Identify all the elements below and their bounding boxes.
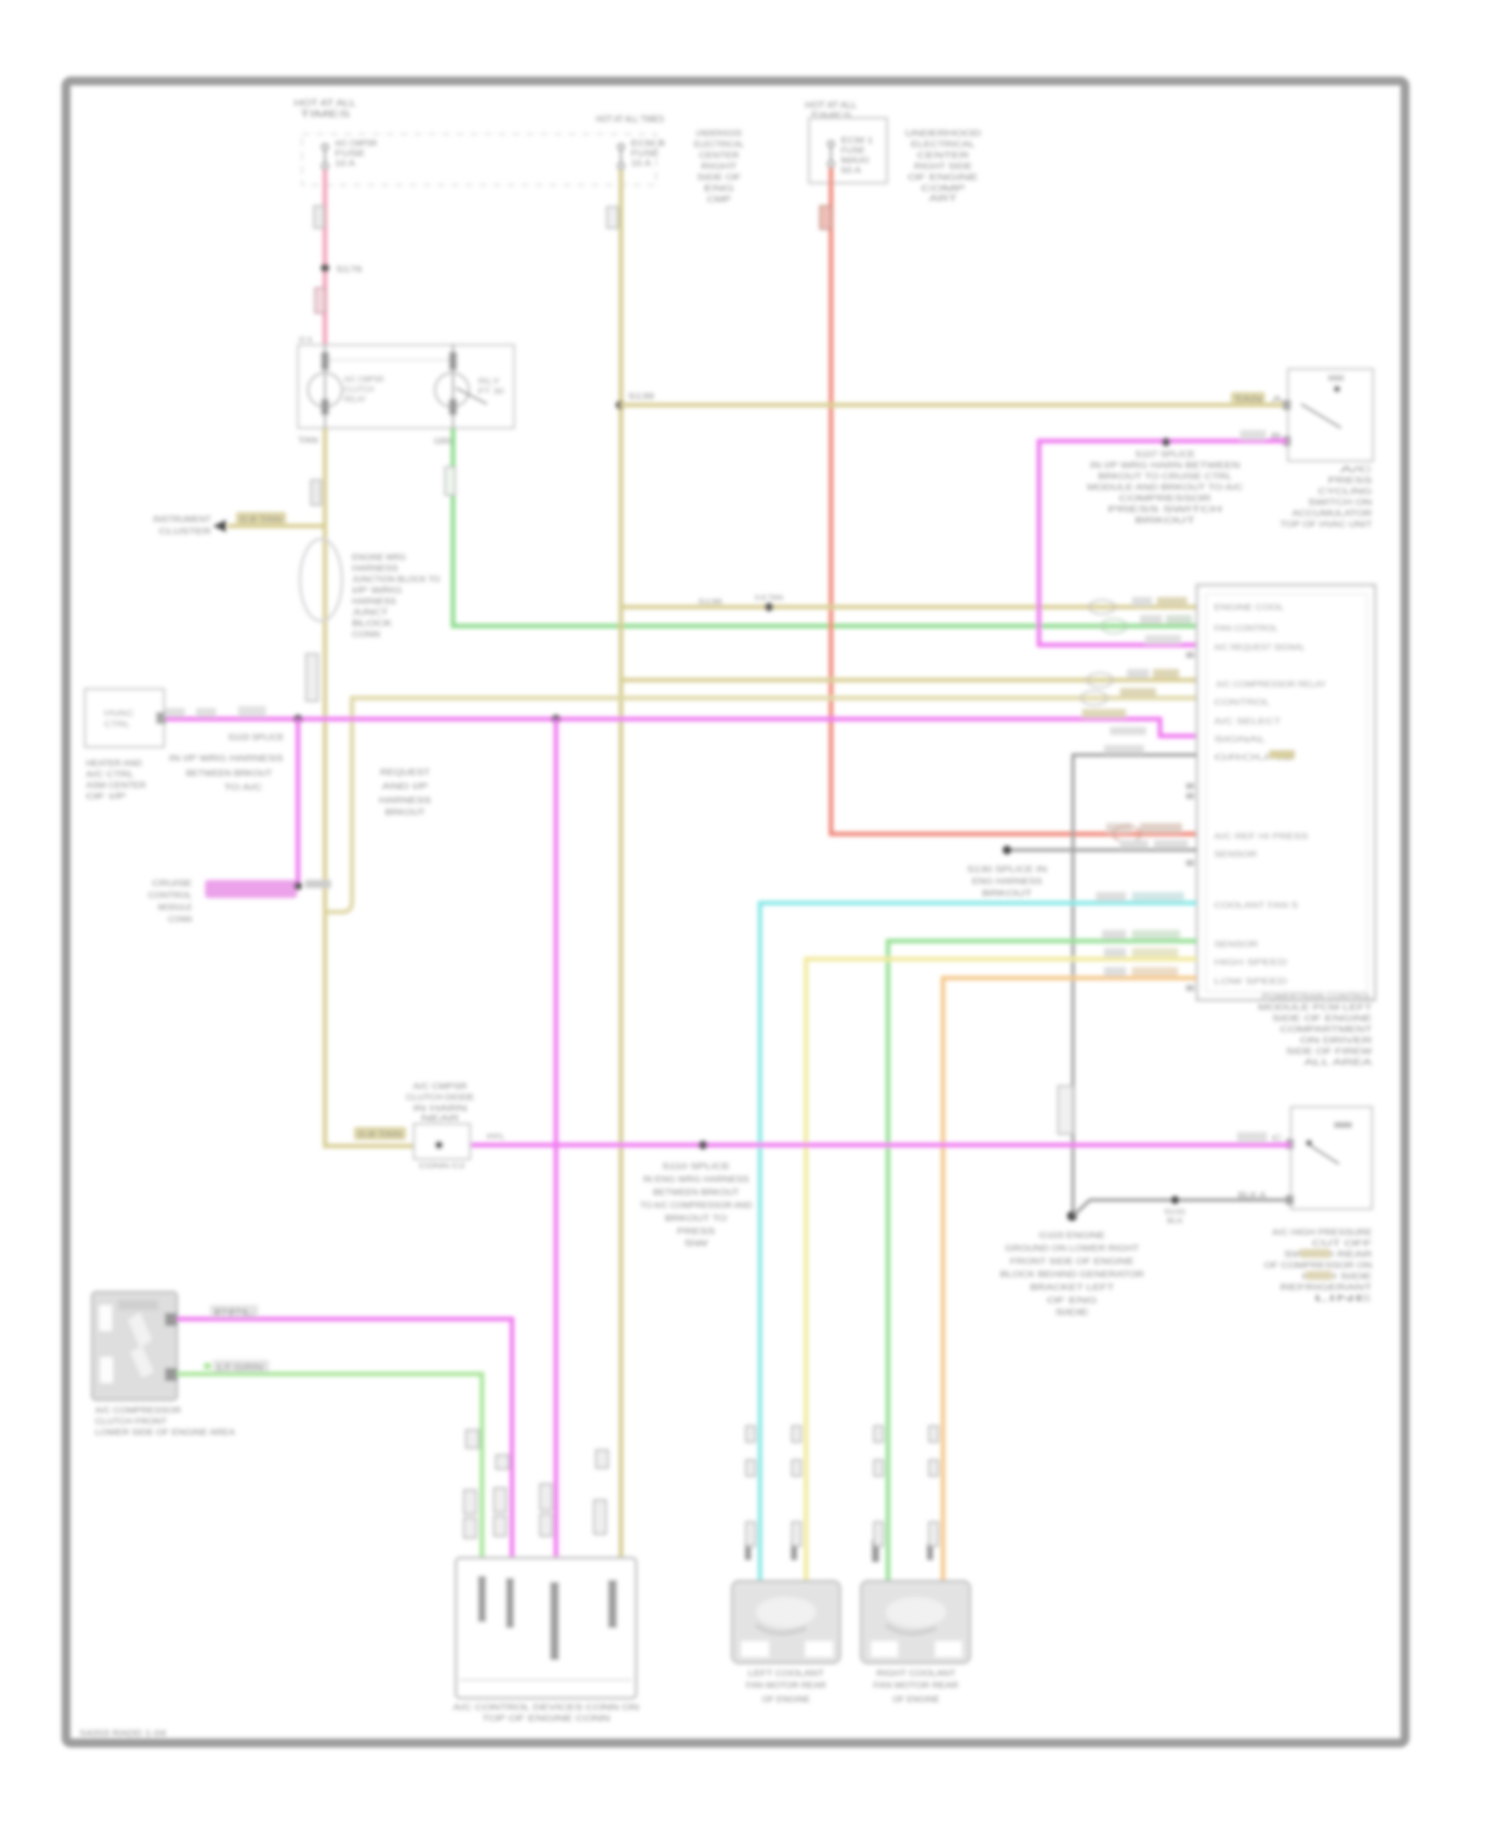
svg-text:TOP OF HVAC UNIT: TOP OF HVAC UNIT [1280,520,1372,529]
svg-text:JUNCTION BLOCK TO: JUNCTION BLOCK TO [352,575,440,584]
svg-text:SW: SW [684,1239,709,1248]
svg-text:CONN: CONN [168,915,192,924]
svg-text:TO A/C: TO A/C [224,783,262,792]
svg-text:POWERTRAIN CONTROL: POWERTRAIN CONTROL [1262,992,1373,1001]
svg-text:A/C COMPRESSOR: A/C COMPRESSOR [95,1406,181,1415]
svg-text:TAN: TAN [1234,395,1262,404]
svg-text:G103 ENGINE: G103 ENGINE [1039,1231,1105,1240]
svg-text:IN I/P WRG HARNESS: IN I/P WRG HARNESS [169,754,283,763]
svg-text:HOT AT ALL: HOT AT ALL [294,98,356,108]
svg-text:SIDE OF: SIDE OF [697,173,741,182]
svg-text:RIGHT COOLANT: RIGHT COOLANT [877,1669,956,1678]
svg-text:S107 SPLICE: S107 SPLICE [1135,450,1195,459]
svg-text:OF ENGINE: OF ENGINE [908,173,978,182]
svg-text:INSTRUMENT: INSTRUMENT [153,515,211,524]
svg-text:FRONT SIDE OF ENGINE: FRONT SIDE OF ENGINE [1010,1257,1134,1266]
svg-text:BLK A: BLK A [1238,1191,1267,1200]
svg-text:SIDE OF ENGINE: SIDE OF ENGINE [1272,1014,1372,1023]
svg-text:A/C COMPRESSOR RELAY: A/C COMPRESSOR RELAY [1216,680,1327,689]
svg-text:ENGINE COOL: ENGINE COOL [1214,603,1285,612]
svg-text:HARNESS: HARNESS [379,796,431,805]
svg-text:RLY: RLY [478,377,501,386]
svg-text:ON DRIVER: ON DRIVER [1300,1036,1372,1045]
svg-text:S138: S138 [698,599,722,606]
svg-text:LOW SPEED: LOW SPEED [1214,977,1287,986]
svg-text:UNDERHOOD: UNDERHOOD [696,129,742,138]
svg-text:FUSE: FUSE [335,149,365,158]
svg-text:CONN C2: CONN C2 [419,1163,465,1170]
svg-text:CUT OFF: CUT OFF [1312,1239,1372,1248]
svg-text:TOP OF ENGINE CONN: TOP OF ENGINE CONN [482,1714,610,1723]
svg-text:CLUTCH FRONT: CLUTCH FRONT [95,1417,167,1426]
svg-text:CLUTCH DIODE: CLUTCH DIODE [406,1093,474,1102]
svg-text:BLK: BLK [1167,1218,1183,1225]
svg-text:CLUTCH: CLUTCH [344,385,374,394]
svg-text:BRACKET LEFT: BRACKET LEFT [1030,1283,1114,1292]
svg-text:A/C: A/C [1340,465,1373,474]
svg-text:BLOCK BEHIND GENERATOR: BLOCK BEHIND GENERATOR [1000,1270,1144,1279]
svg-text:REFRIGERANT: REFRIGERANT [1280,1283,1372,1292]
svg-text:RIGHT SIDE: RIGHT SIDE [914,162,972,171]
svg-text:ENGINE WRG: ENGINE WRG [352,553,406,562]
svg-text:A/C REQUEST SIGNAL: A/C REQUEST SIGNAL [1214,643,1306,652]
svg-text:NEAR: NEAR [421,1114,459,1123]
svg-text:FAN MOTOR REAR: FAN MOTOR REAR [874,1681,959,1690]
svg-text:SIGNAL: SIGNAL [1214,735,1267,744]
svg-text:IN HARN: IN HARN [413,1104,467,1113]
svg-text:CYCLING: CYCLING [1318,487,1372,496]
svg-text:A/C CTRL: A/C CTRL [86,770,135,779]
svg-text:50 A: 50 A [841,166,862,175]
svg-text:TO A/C COMPRESSOR AND: TO A/C COMPRESSOR AND [640,1201,752,1210]
svg-text:HIGH SPEED: HIGH SPEED [1214,958,1287,967]
svg-text:SIDE: SIDE [1055,1308,1089,1317]
svg-text:A/C REF HI PRESS: A/C REF HI PRESS [1214,832,1308,841]
svg-text:B: B [1271,432,1281,441]
svg-text:CMP: CMP [707,195,731,204]
svg-text:TIMES: TIMES [300,109,350,119]
svg-text:HARNESS: HARNESS [352,564,398,573]
svg-text:FUSE: FUSE [631,149,659,158]
svg-text:BLOCK: BLOCK [352,619,393,628]
svg-text:HEATER AND: HEATER AND [86,759,142,768]
svg-text:C1: C1 [299,337,313,344]
svg-text:LOWER SIDE OF ENGINE AREA: LOWER SIDE OF ENGINE AREA [95,1428,236,1437]
svg-text:A: A [1272,395,1283,404]
svg-text:OF ENGINE: OF ENGINE [762,1695,810,1704]
svg-text:JUNCT: JUNCT [352,608,388,617]
svg-text:CENTER: CENTER [699,151,739,160]
svg-text:BRKOUT: BRKOUT [1135,516,1195,525]
svg-text:ALL AREA: ALL AREA [1304,1058,1373,1067]
svg-text:BETWEEN BRKOUT: BETWEEN BRKOUT [186,769,272,778]
svg-text:15 A: 15 A [631,159,652,168]
svg-text:FAN MOTOR REAR: FAN MOTOR REAR [746,1681,826,1690]
svg-text:LT GRN: LT GRN [217,1363,263,1372]
svg-text:SENSOR: SENSOR [1214,850,1257,859]
svg-text:MAXI: MAXI [841,156,869,165]
svg-text:PPL: PPL [487,1134,505,1141]
svg-text:GRN: GRN [434,437,452,446]
svg-text:ART: ART [929,194,957,203]
svg-text:RELAY: RELAY [344,395,367,404]
svg-text:OF I/P: OF I/P [86,792,126,801]
svg-text:PPL: PPL [214,1308,255,1317]
svg-text:A/C CMPSR: A/C CMPSR [335,139,377,148]
svg-text:0.8 TAN: 0.8 TAN [755,595,783,602]
svg-text:SIDE OF FIREW: SIDE OF FIREW [1286,1047,1373,1056]
svg-text:CONTROL: CONTROL [148,891,193,900]
svg-text:LEFT COOLANT: LEFT COOLANT [748,1669,824,1678]
svg-text:CRUISE: CRUISE [152,879,192,888]
svg-text:0.8 TAN: 0.8 TAN [358,1130,402,1139]
svg-text:BRKOUT: BRKOUT [385,808,425,817]
svg-text:ELECTRICAL: ELECTRICAL [694,140,745,149]
svg-text:S139: S139 [628,392,655,401]
svg-text:TAN: TAN [298,436,318,445]
svg-text:IN ENG WRG HARNESS: IN ENG WRG HARNESS [643,1175,749,1184]
svg-text:S130 SPLICE IN: S130 SPLICE IN [967,865,1047,874]
svg-text:A/C CONTROL DEVICES CONN ON: A/C CONTROL DEVICES CONN ON [453,1703,639,1712]
svg-text:BETWEEN BRKOUT: BETWEEN BRKOUT [653,1188,739,1197]
svg-text:I/P WRG: I/P WRG [352,586,402,595]
svg-text:CTRL: CTRL [104,720,131,729]
svg-text:ASM CENTER: ASM CENTER [86,781,146,790]
svg-text:OF COMPRESSOR ON: OF COMPRESSOR ON [1264,1261,1372,1270]
svg-text:0.8 TAN: 0.8 TAN [240,515,282,524]
svg-text:LINE: LINE [1314,1294,1372,1303]
svg-text:ENG HARNESS: ENG HARNESS [972,877,1042,886]
svg-text:HOT AT ALL: HOT AT ALL [805,100,857,110]
svg-text:GROUND ON LOWER RIGHT: GROUND ON LOWER RIGHT [1005,1244,1139,1253]
svg-text:FUSE: FUSE [841,146,865,155]
svg-text:COOLANT FAN S: COOLANT FAN S [1214,901,1298,910]
svg-text:UNDERHOOD: UNDERHOOD [905,129,981,138]
svg-text:54203 RADD 1-04: 54203 RADD 1-04 [80,1729,167,1738]
svg-text:MODULE AND BRKOUT TO A/C: MODULE AND BRKOUT TO A/C [1087,483,1243,492]
svg-text:BRKOUT TO CRUISE CTRL: BRKOUT TO CRUISE CTRL [1098,472,1233,481]
svg-text:HOT AT ALL TIMES: HOT AT ALL TIMES [596,114,664,124]
svg-text:C: C [1272,1134,1282,1143]
svg-text:ECM B: ECM B [631,139,665,148]
svg-text:HVAC: HVAC [104,709,134,718]
svg-text:A/C CMPSR: A/C CMPSR [344,375,384,384]
svg-text:S103 SPLICE: S103 SPLICE [228,733,284,742]
svg-text:BRKOUT TO: BRKOUT TO [665,1214,727,1223]
svg-text:RIGHT: RIGHT [701,162,737,171]
svg-text:PT 30: PT 30 [478,387,505,396]
svg-text:AND I/P: AND I/P [382,782,428,791]
svg-text:OF ENGINE: OF ENGINE [893,1695,940,1704]
svg-text:A/C HIGH PRESSURE: A/C HIGH PRESSURE [1272,1228,1372,1237]
svg-text:PRESS: PRESS [677,1227,715,1236]
svg-text:ACCUMULATOR: ACCUMULATOR [1292,509,1372,518]
svg-text:BRKOUT: BRKOUT [982,889,1032,898]
svg-text:S110 SPLICE: S110 SPLICE [662,1162,730,1171]
svg-text:COMP: COMP [921,184,965,193]
svg-text:FAN CONTROL: FAN CONTROL [1214,624,1279,633]
svg-text:MODULE: MODULE [158,903,192,912]
svg-text:PRESS: PRESS [1328,476,1372,485]
svg-text:COMPRESSOR: COMPRESSOR [1119,494,1211,503]
svg-text:ENG: ENG [704,184,734,193]
svg-text:OF ENG: OF ENG [1047,1296,1097,1305]
svg-text:CONN: CONN [352,630,380,639]
svg-text:REQUEST: REQUEST [380,768,430,777]
svg-text:MODULE PCM LEFT: MODULE PCM LEFT [1258,1003,1372,1012]
svg-text:A/C SELECT: A/C SELECT [1214,717,1281,726]
svg-text:SWITCH ON: SWITCH ON [1308,498,1372,507]
svg-text:A/C CMPSR: A/C CMPSR [413,1082,467,1091]
svg-text:CONTROL: CONTROL [1214,698,1271,707]
svg-text:S176: S176 [336,265,363,274]
svg-text:TIMES: TIMES [810,111,852,121]
svg-text:S131: S131 [1164,1209,1186,1216]
svg-text:PRESS SWITCH: PRESS SWITCH [1108,505,1222,514]
svg-text:IN I/P WRG HARN BETWEEN: IN I/P WRG HARN BETWEEN [1090,461,1240,470]
svg-text:ELECTRICAL: ELECTRICAL [911,140,976,149]
svg-text:HARNESS: HARNESS [352,597,396,606]
svg-text:CLUSTER: CLUSTER [159,527,211,536]
svg-text:ECM 1: ECM 1 [841,136,874,145]
svg-text:CENTER: CENTER [917,151,969,160]
svg-text:10 A: 10 A [335,159,356,168]
svg-text:COMPARTMENT: COMPARTMENT [1280,1025,1372,1034]
svg-text:SENSOR: SENSOR [1214,940,1258,949]
